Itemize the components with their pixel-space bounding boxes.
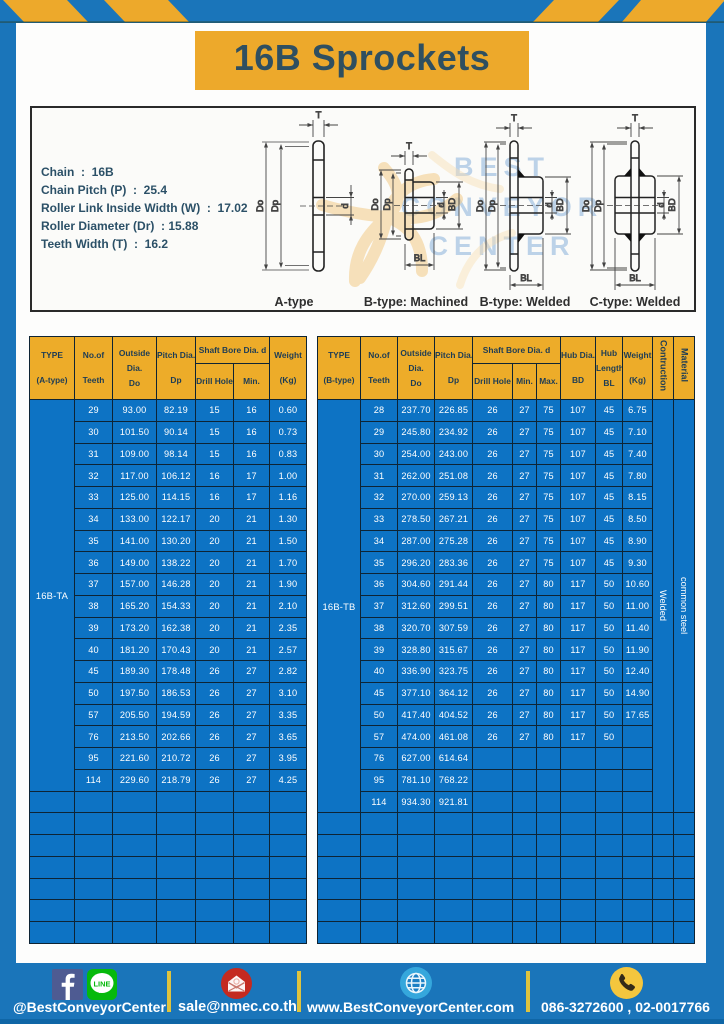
svg-text:d: d bbox=[340, 203, 351, 208]
svg-text:T: T bbox=[406, 141, 412, 152]
svg-text:T: T bbox=[511, 113, 517, 124]
svg-text:Dp: Dp bbox=[270, 200, 281, 212]
svg-text:BL: BL bbox=[414, 253, 426, 264]
svg-text:BD: BD bbox=[555, 198, 566, 211]
svg-text:LINE: LINE bbox=[93, 980, 110, 989]
svg-text:d: d bbox=[656, 202, 666, 207]
svg-text:Dp: Dp bbox=[593, 200, 604, 212]
svg-text:d: d bbox=[544, 202, 554, 207]
svg-text:BD: BD bbox=[447, 198, 458, 211]
svg-text:Do: Do bbox=[475, 200, 486, 212]
svg-text:Dp: Dp bbox=[382, 198, 393, 210]
svg-text:Do: Do bbox=[255, 200, 266, 212]
svg-text:T: T bbox=[316, 110, 322, 121]
svg-text:Do: Do bbox=[370, 198, 381, 210]
svg-text:BD: BD bbox=[667, 198, 678, 211]
svg-text:BL: BL bbox=[520, 273, 532, 284]
svg-text:d: d bbox=[436, 202, 446, 207]
svg-text:Do: Do bbox=[581, 200, 592, 212]
svg-text:T: T bbox=[632, 113, 638, 124]
svg-text:Dp: Dp bbox=[487, 200, 498, 212]
svg-text:BL: BL bbox=[629, 273, 641, 284]
